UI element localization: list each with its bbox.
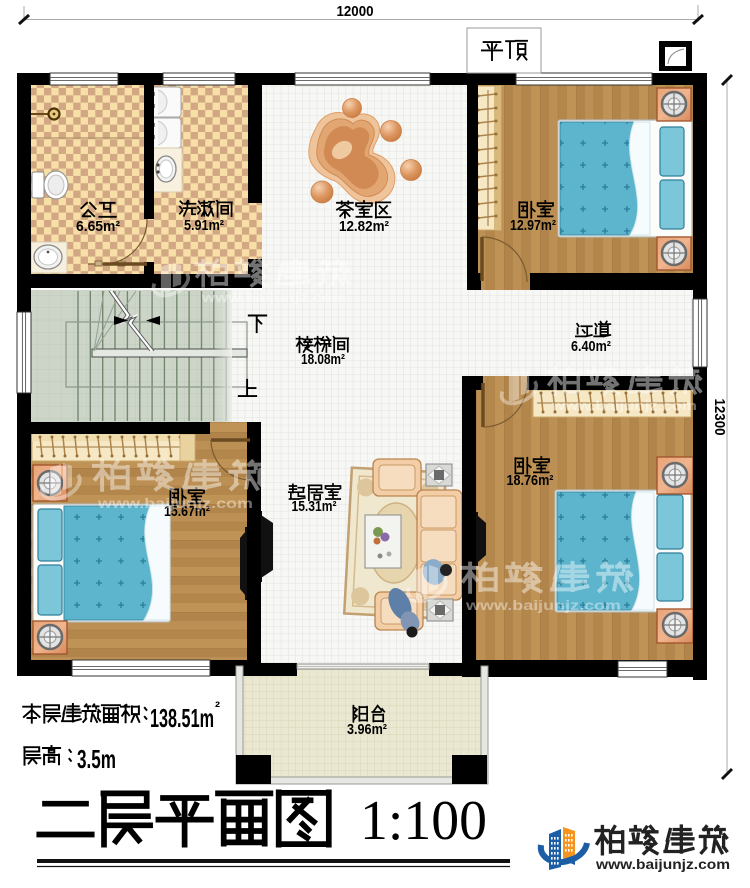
svg-text:18.76m²: 18.76m² <box>507 473 554 489</box>
svg-text:6.65m²: 6.65m² <box>76 219 120 235</box>
svg-text:3.5m: 3.5m <box>77 744 116 774</box>
svg-text:138.51m: 138.51m <box>150 703 214 733</box>
svg-text:12.97m²: 12.97m² <box>510 218 556 234</box>
svg-text:18.08m²: 18.08m² <box>301 352 345 368</box>
svg-text:15.31m²: 15.31m² <box>292 499 337 515</box>
svg-text:3.96m²: 3.96m² <box>347 722 387 738</box>
svg-text:12000: 12000 <box>337 3 374 20</box>
svg-text:5.91m²: 5.91m² <box>184 218 224 234</box>
svg-text:www.baijunjz.com: www.baijunjz.com <box>551 398 697 413</box>
svg-text:www.baijunjz.com: www.baijunjz.com <box>201 290 347 305</box>
svg-text:12300: 12300 <box>711 399 728 436</box>
svg-text:www.baijunjz.com: www.baijunjz.com <box>595 856 730 872</box>
svg-text:²: ² <box>215 699 220 716</box>
svg-text:12.82m²: 12.82m² <box>339 219 389 235</box>
svg-text:1:100: 1:100 <box>360 790 487 852</box>
svg-text:www.baijunjz.com: www.baijunjz.com <box>97 495 253 511</box>
svg-text:www.baijunjz.com: www.baijunjz.com <box>465 597 621 613</box>
svg-text:6.40m²: 6.40m² <box>571 339 611 355</box>
